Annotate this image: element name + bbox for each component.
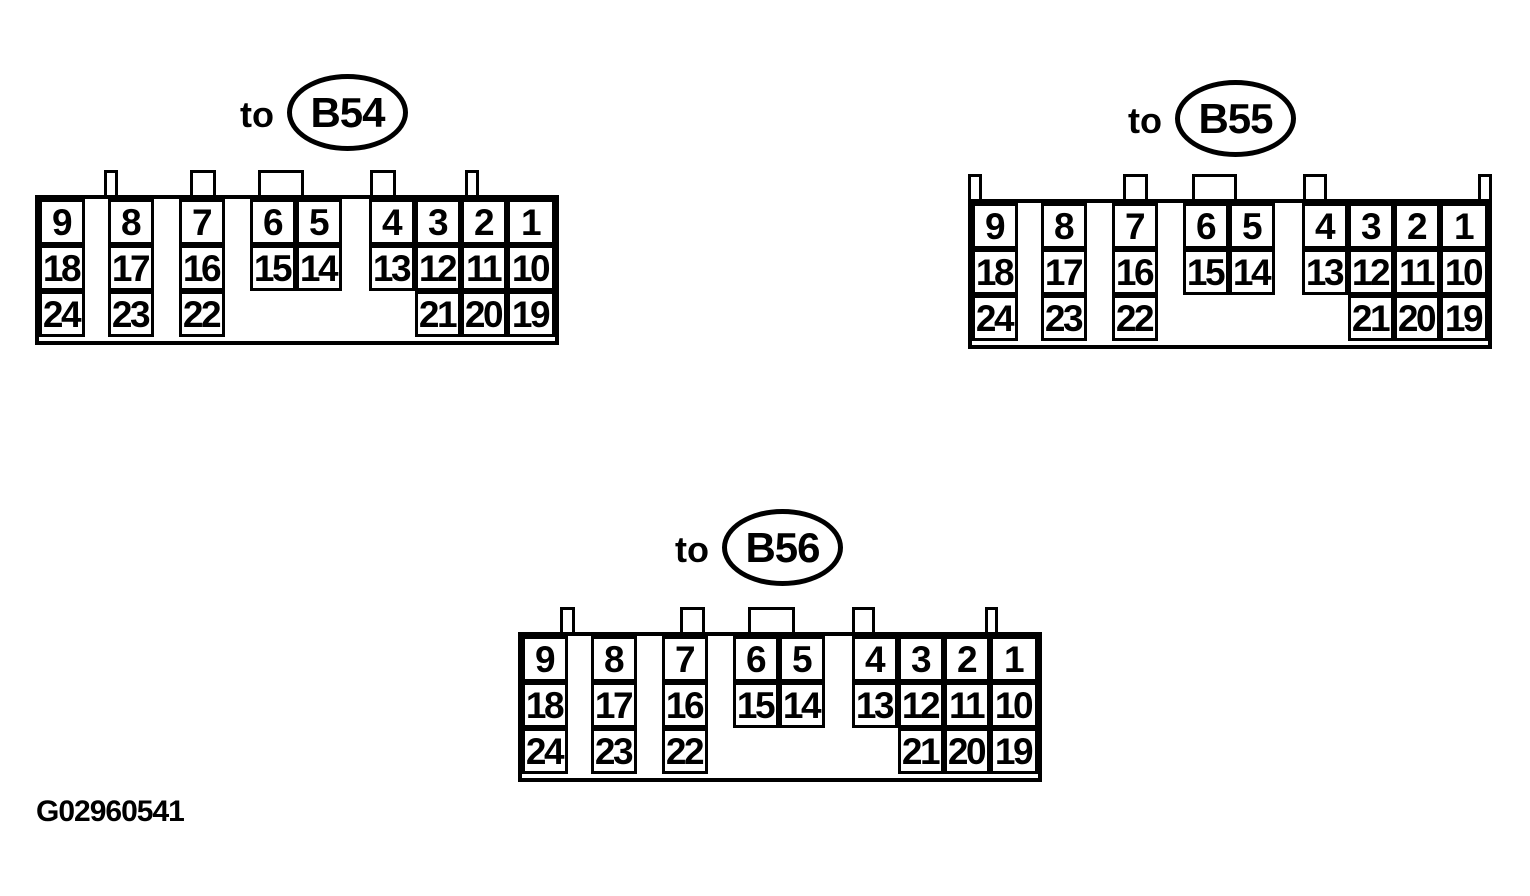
pin-cell-b56-21: 21 — [898, 728, 944, 774]
connector-b54: to B54 987654321181716151413121110242322… — [35, 195, 559, 345]
pin-cell-b54-4: 4 — [369, 199, 415, 245]
pin-cell-b56-3: 3 — [898, 636, 944, 682]
pin-cell-b54-12: 12 — [415, 245, 461, 291]
connector-housing: 987654321181716151413121110242322212019 — [968, 199, 1492, 349]
connector-label-b56: to B56 — [675, 509, 843, 586]
pin-cell-b56-1: 1 — [990, 636, 1038, 682]
keying-tab — [985, 607, 998, 632]
pin-cell-b54-8: 8 — [108, 199, 154, 245]
pin-cell-b54-19: 19 — [507, 291, 555, 337]
connector-label-b54: to B54 — [240, 74, 408, 151]
keying-tab — [1303, 174, 1327, 199]
pin-cell-b56-24: 24 — [522, 728, 568, 774]
keying-tab — [258, 170, 304, 195]
connector-b55: to B55 987654321181716151413121110242322… — [968, 199, 1492, 349]
keying-tab — [1478, 174, 1492, 199]
pin-cell-b55-17: 17 — [1041, 249, 1087, 295]
keying-tab — [852, 607, 875, 632]
pin-cell-b56-8: 8 — [591, 636, 637, 682]
keying-tab — [465, 170, 479, 195]
pin-cell-b56-9: 9 — [522, 636, 568, 682]
pin-cell-b56-20: 20 — [944, 728, 990, 774]
pin-cell-b56-6: 6 — [733, 636, 779, 682]
pin-cell-b54-17: 17 — [108, 245, 154, 291]
pin-cell-b54-6: 6 — [250, 199, 296, 245]
pin-cell-b55-2: 2 — [1394, 203, 1440, 249]
pin-cell-b56-23: 23 — [591, 728, 637, 774]
pin-cell-b56-19: 19 — [990, 728, 1038, 774]
pin-cell-b54-20: 20 — [461, 291, 507, 337]
pin-cell-b54-18: 18 — [39, 245, 85, 291]
pin-cell-b55-20: 20 — [1394, 295, 1440, 341]
pin-cell-b56-5: 5 — [779, 636, 825, 682]
pin-cell-b55-21: 21 — [1348, 295, 1394, 341]
pin-cell-b55-9: 9 — [972, 203, 1018, 249]
pin-cell-b56-12: 12 — [898, 682, 944, 728]
pin-cell-b54-5: 5 — [296, 199, 342, 245]
pin-cell-b54-14: 14 — [296, 245, 342, 291]
pin-cell-b56-17: 17 — [591, 682, 637, 728]
pin-cell-b54-21: 21 — [415, 291, 461, 337]
pin-cell-b56-22: 22 — [662, 728, 708, 774]
pin-cell-b56-2: 2 — [944, 636, 990, 682]
pin-cell-b56-16: 16 — [662, 682, 708, 728]
pin-cell-b56-14: 14 — [779, 682, 825, 728]
pin-cell-b54-23: 23 — [108, 291, 154, 337]
pin-cell-b54-22: 22 — [179, 291, 225, 337]
pin-cell-b54-10: 10 — [507, 245, 555, 291]
pin-cell-b55-1: 1 — [1440, 203, 1488, 249]
connector-id-oval: B54 — [287, 74, 408, 151]
pin-cell-b56-15: 15 — [733, 682, 779, 728]
pin-cell-b55-14: 14 — [1229, 249, 1275, 295]
pin-cell-b56-11: 11 — [944, 682, 990, 728]
to-label: to — [240, 93, 274, 133]
pin-cell-b54-16: 16 — [179, 245, 225, 291]
connector-housing: 987654321181716151413121110242322212019 — [35, 195, 559, 345]
pin-cell-b54-1: 1 — [507, 199, 555, 245]
connector-b56: to B56 987654321181716151413121110242322… — [518, 632, 1042, 782]
pin-cell-b54-3: 3 — [415, 199, 461, 245]
connector-label-b55: to B55 — [1128, 80, 1296, 157]
connector-housing: 987654321181716151413121110242322212019 — [518, 632, 1042, 782]
pin-cell-b55-5: 5 — [1229, 203, 1275, 249]
pin-cell-b55-7: 7 — [1112, 203, 1158, 249]
keying-tab — [370, 170, 396, 195]
pin-cell-b54-7: 7 — [179, 199, 225, 245]
to-label: to — [1128, 99, 1162, 139]
pin-cell-b55-13: 13 — [1302, 249, 1348, 295]
keying-tab — [968, 174, 982, 199]
pin-cell-b54-15: 15 — [250, 245, 296, 291]
keying-tab — [680, 607, 705, 632]
pin-cell-b55-3: 3 — [1348, 203, 1394, 249]
to-label: to — [675, 528, 709, 568]
pin-cell-b54-11: 11 — [461, 245, 507, 291]
pin-cell-b55-22: 22 — [1112, 295, 1158, 341]
pin-cell-b55-15: 15 — [1183, 249, 1229, 295]
pin-cell-b55-10: 10 — [1440, 249, 1488, 295]
figure-id: G02960541 — [36, 795, 184, 829]
pin-cell-b55-16: 16 — [1112, 249, 1158, 295]
pin-cell-b54-9: 9 — [39, 199, 85, 245]
connector-pinout-diagram: to B54 987654321181716151413121110242322… — [0, 0, 1530, 896]
pin-cell-b54-2: 2 — [461, 199, 507, 245]
pin-cell-b56-13: 13 — [852, 682, 898, 728]
keying-tab — [190, 170, 216, 195]
pin-cell-b56-7: 7 — [662, 636, 708, 682]
pin-cell-b54-13: 13 — [369, 245, 415, 291]
keying-tab — [748, 607, 795, 632]
pin-cell-b55-4: 4 — [1302, 203, 1348, 249]
keying-tab — [1123, 174, 1148, 199]
connector-id-oval: B56 — [722, 509, 843, 586]
pin-cell-b55-12: 12 — [1348, 249, 1394, 295]
pin-cell-b54-24: 24 — [39, 291, 85, 337]
pin-cell-b56-4: 4 — [852, 636, 898, 682]
pin-cell-b55-19: 19 — [1440, 295, 1488, 341]
pin-cell-b56-18: 18 — [522, 682, 568, 728]
pin-cell-b56-10: 10 — [990, 682, 1038, 728]
pin-cell-b55-8: 8 — [1041, 203, 1087, 249]
pin-cell-b55-6: 6 — [1183, 203, 1229, 249]
pin-cell-b55-18: 18 — [972, 249, 1018, 295]
pin-cell-b55-24: 24 — [972, 295, 1018, 341]
keying-tab — [104, 170, 118, 195]
keying-tab — [560, 607, 575, 632]
connector-id-oval: B55 — [1175, 80, 1296, 157]
pin-cell-b55-23: 23 — [1041, 295, 1087, 341]
keying-tab — [1192, 174, 1237, 199]
pin-cell-b55-11: 11 — [1394, 249, 1440, 295]
